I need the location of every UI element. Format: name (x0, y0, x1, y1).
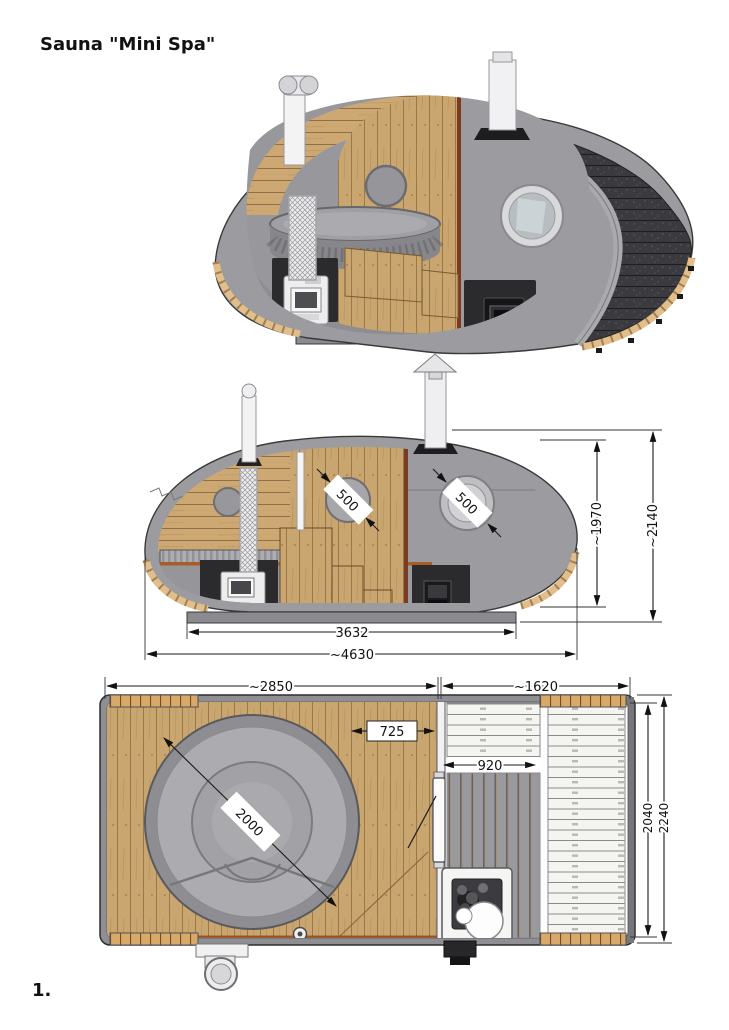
svg-text:~2850: ~2850 (249, 680, 293, 695)
partition-edge-section (404, 442, 408, 606)
tub-drain-fitting (196, 944, 248, 990)
svg-text:2240: 2240 (657, 803, 671, 834)
tubroom-porthole (214, 488, 242, 516)
porthole-reflection (516, 198, 546, 234)
side-section-view: 3632 ~4630 ~1970 ~2140 (145, 354, 662, 663)
perspective-cutaway-view (215, 52, 694, 360)
svg-text:2040: 2040 (641, 803, 655, 834)
svg-text:~1620: ~1620 (514, 680, 558, 695)
heater-feed-through-wall (444, 941, 476, 965)
side-bench-planks (548, 703, 625, 938)
tub-stove-section (221, 572, 265, 605)
vent-pipe-section (297, 452, 304, 530)
sauna-bench-upper (447, 703, 540, 757)
svg-text:725: 725 (380, 725, 405, 740)
floor-plan-view: ~2850 ~1620 725 920 2000 (100, 677, 672, 990)
svg-text:3632: 3632 (335, 626, 368, 641)
bench-step-low-3d (422, 270, 458, 318)
floor-base-section (187, 612, 516, 623)
technical-drawing: 3632 ~4630 ~1970 ~2140 (0, 0, 729, 1030)
svg-text:~2140: ~2140 (646, 504, 661, 548)
mesh-chimney-guard-3d (289, 196, 316, 280)
partition-window-3d (366, 166, 406, 206)
bench-step-high-3d (345, 248, 422, 302)
svg-text:~4630: ~4630 (330, 648, 374, 663)
svg-text:~1970: ~1970 (590, 502, 605, 546)
drawing-sheet: Sauna "Mini Spa" 1. (0, 0, 729, 1030)
svg-text:920: 920 (478, 759, 503, 774)
mesh-chimney-guard-section (240, 468, 257, 572)
sauna-heater-plan (442, 868, 512, 941)
